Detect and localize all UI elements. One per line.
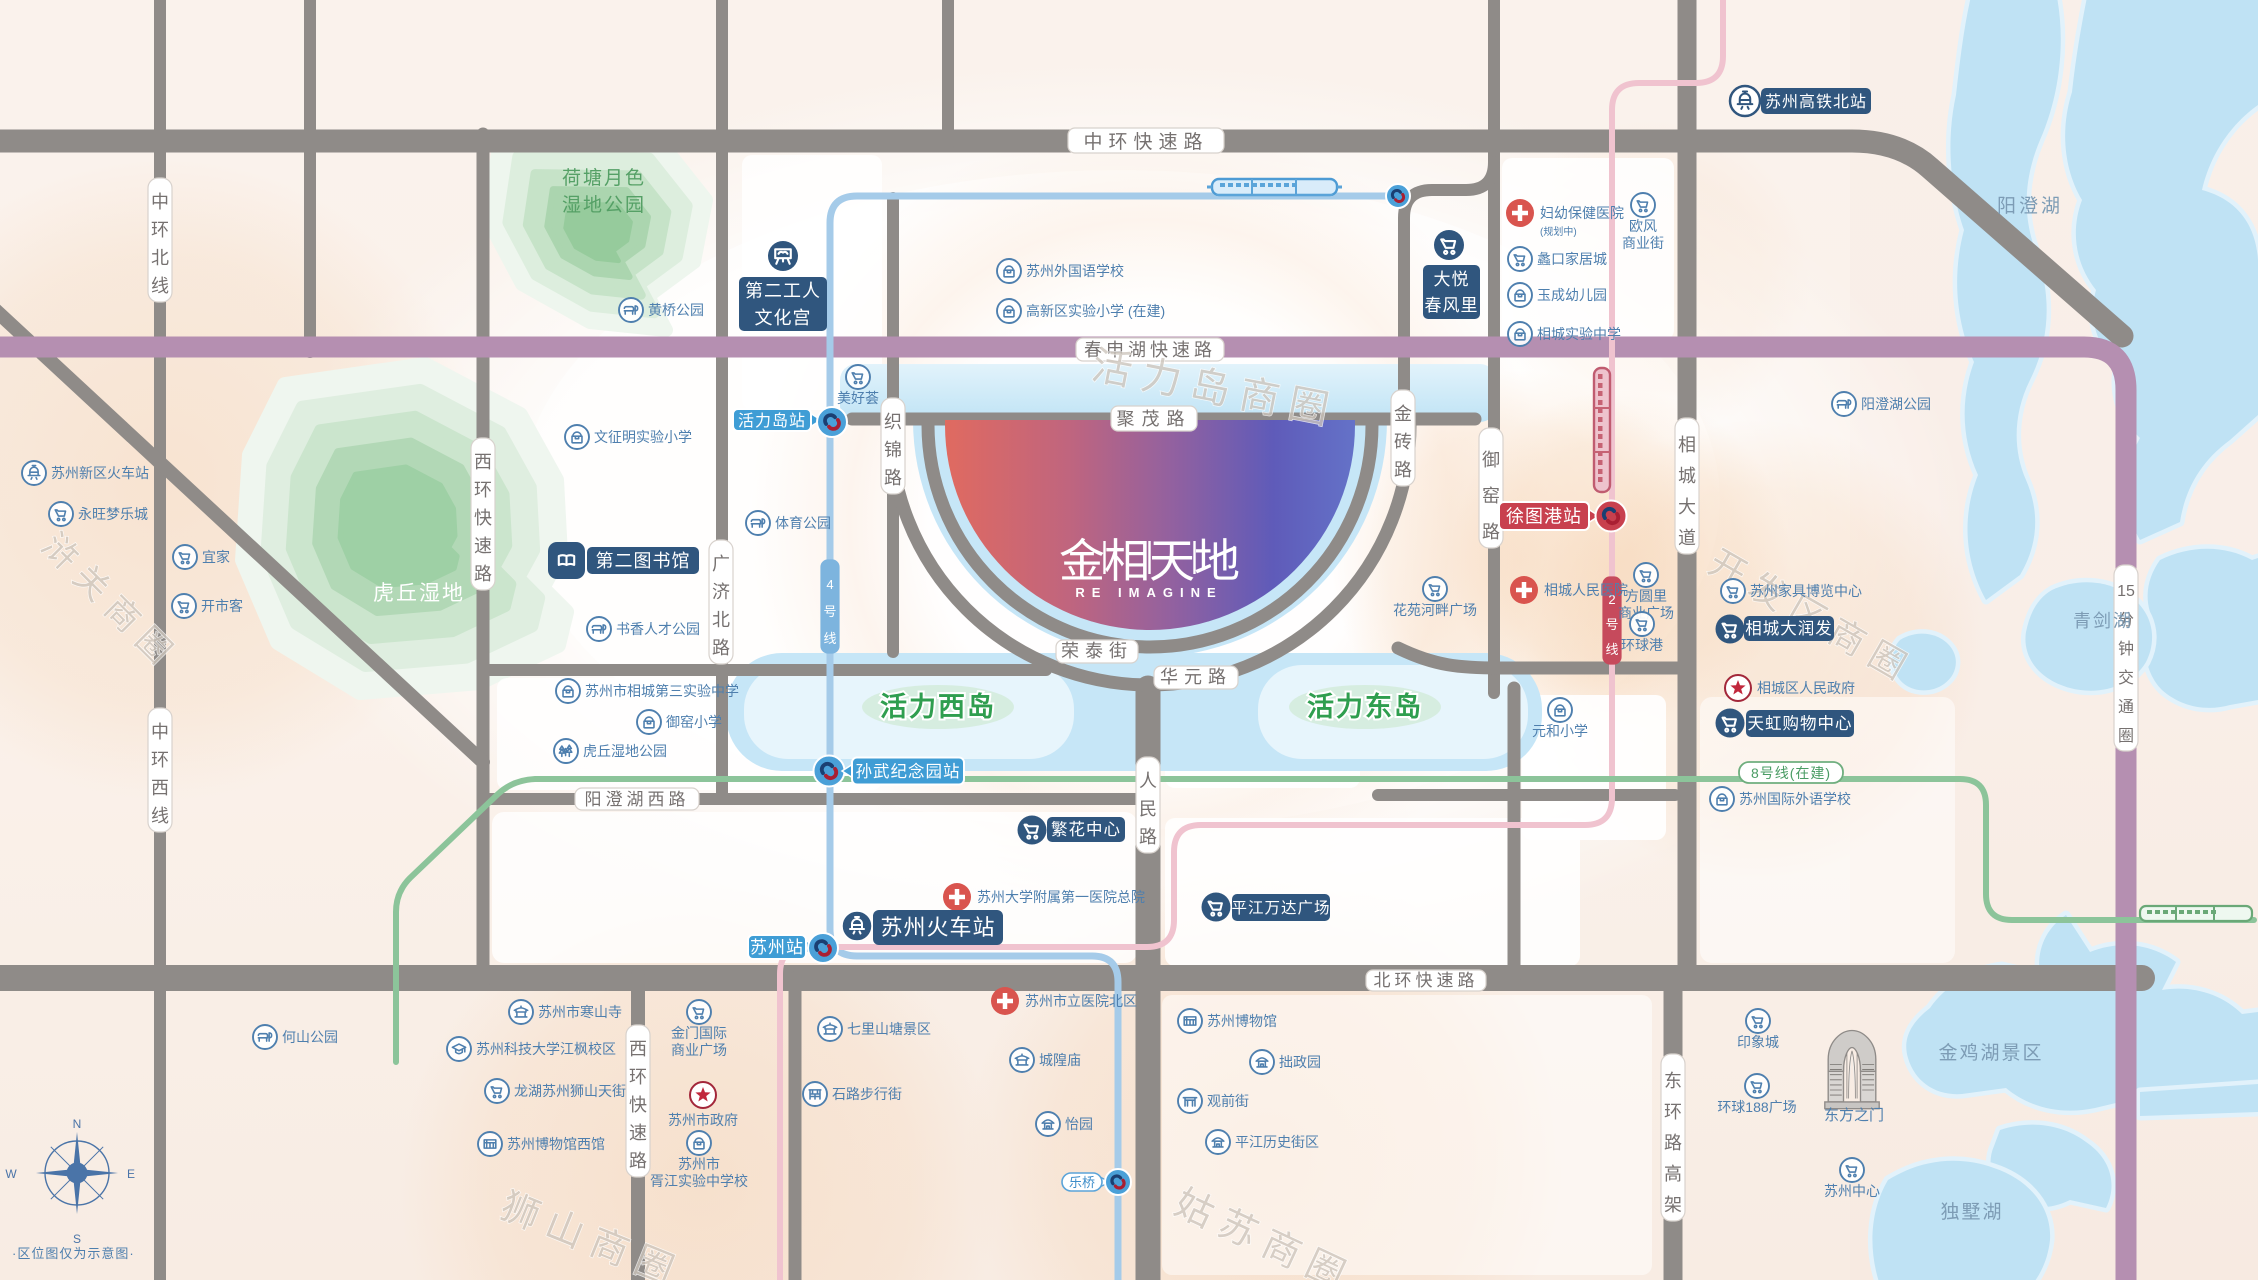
svg-text:相: 相 (1104, 535, 1150, 587)
svg-text:怡园: 怡园 (1065, 1116, 1093, 1132)
svg-text:阳澄湖公园: 阳澄湖公园 (1861, 396, 1931, 412)
svg-text:黄桥公园: 黄桥公园 (648, 302, 704, 318)
svg-text:圈: 圈 (2118, 727, 2134, 745)
svg-text:窑: 窑 (1482, 486, 1500, 506)
svg-text:活力岛站: 活力岛站 (738, 412, 806, 430)
svg-text:锦: 锦 (884, 440, 902, 460)
svg-text:城隍庙: 城隍庙 (1039, 1052, 1081, 1068)
svg-text:中: 中 (151, 192, 169, 212)
svg-text:W: W (5, 1167, 17, 1181)
svg-text:苏州火车站: 苏州火车站 (880, 915, 995, 940)
svg-text:荣泰街: 荣泰街 (1061, 641, 1133, 661)
svg-text:S: S (73, 1232, 81, 1246)
svg-text:欧风: 欧风 (1629, 218, 1657, 234)
svg-text:苏州市寒山寺: 苏州市寒山寺 (538, 1004, 622, 1020)
svg-text:N: N (73, 1117, 82, 1131)
svg-text:号: 号 (1605, 617, 1618, 632)
svg-text:东: 东 (1664, 1071, 1682, 1091)
svg-text:虎丘湿地公园: 虎丘湿地公园 (583, 743, 667, 759)
svg-text:乐桥: 乐桥 (1069, 1175, 1095, 1190)
svg-text:观前街: 观前街 (1207, 1093, 1249, 1109)
svg-text:西: 西 (629, 1039, 647, 1059)
svg-text:通: 通 (2118, 698, 2134, 716)
svg-text:中环快速路: 中环快速路 (1083, 131, 1208, 153)
svg-text:高: 高 (1664, 1164, 1682, 1184)
svg-text:环: 环 (151, 220, 169, 240)
svg-text:钟: 钟 (2118, 640, 2134, 658)
svg-text:速: 速 (474, 536, 492, 556)
svg-text:玉成幼儿园: 玉成幼儿园 (1537, 287, 1607, 303)
svg-text:天: 天 (1149, 535, 1195, 587)
svg-text:济: 济 (712, 582, 730, 602)
svg-text:东方之门: 东方之门 (1824, 1107, 1884, 1124)
svg-text:环: 环 (474, 480, 492, 500)
svg-text:金门国际: 金门国际 (671, 1025, 727, 1041)
svg-text:线: 线 (823, 631, 836, 646)
svg-text:金: 金 (1394, 404, 1412, 424)
svg-text:相城区人民政府: 相城区人民政府 (1757, 680, 1855, 696)
svg-text:高新区实验小学 (在建): 高新区实验小学 (在建) (1026, 303, 1165, 319)
svg-text:商业广场: 商业广场 (671, 1042, 727, 1058)
svg-text:徐图港站: 徐图港站 (1506, 506, 1582, 526)
svg-text:快: 快 (629, 1095, 647, 1115)
svg-text:大悦: 大悦 (1434, 270, 1470, 289)
svg-text:速: 速 (629, 1123, 647, 1143)
svg-text:聚茂路: 聚茂路 (1117, 409, 1192, 429)
svg-text:相城实验中学: 相城实验中学 (1537, 326, 1621, 342)
svg-text:·区位图仅为示意图·: ·区位图仅为示意图· (12, 1246, 135, 1261)
svg-text:砖: 砖 (1394, 432, 1412, 452)
svg-text:地: 地 (1194, 535, 1240, 587)
svg-text:御窑小学: 御窑小学 (666, 714, 722, 730)
svg-text:环球港: 环球港 (1621, 637, 1663, 653)
svg-text:独墅湖: 独墅湖 (1940, 1201, 2003, 1223)
svg-text:北: 北 (712, 610, 730, 630)
svg-text:民: 民 (1139, 799, 1157, 819)
svg-text:苏州新区火车站: 苏州新区火车站 (51, 465, 149, 481)
svg-text:春风里: 春风里 (1425, 296, 1479, 315)
svg-text:何山公园: 何山公园 (282, 1029, 338, 1045)
svg-text:平江万达广场: 平江万达广场 (1231, 899, 1330, 917)
svg-text:美好荟: 美好荟 (837, 390, 879, 406)
svg-text:湿地公园: 湿地公园 (562, 194, 646, 216)
svg-text:路: 路 (712, 638, 730, 658)
svg-text:御: 御 (1482, 450, 1500, 470)
svg-text:第二图书馆: 第二图书馆 (596, 551, 691, 571)
svg-text:线: 线 (1605, 642, 1618, 657)
svg-text:路: 路 (884, 468, 902, 488)
svg-text:石路步行街: 石路步行街 (832, 1086, 902, 1102)
svg-text:龙湖苏州狮山天街: 龙湖苏州狮山天街 (514, 1083, 626, 1099)
svg-text:RE IMAGINE: RE IMAGINE (1075, 585, 1222, 600)
svg-text:15: 15 (2117, 583, 2135, 600)
svg-text:路: 路 (474, 564, 492, 584)
svg-text:苏州博物馆西馆: 苏州博物馆西馆 (507, 1136, 605, 1152)
svg-text:永旺梦乐城: 永旺梦乐城 (78, 506, 148, 522)
svg-text:环球188广场: 环球188广场 (1717, 1099, 1796, 1115)
svg-text:路: 路 (1664, 1133, 1682, 1153)
svg-text:人: 人 (1139, 771, 1157, 791)
svg-text:E: E (127, 1167, 135, 1181)
svg-text:路: 路 (1482, 522, 1500, 542)
svg-text:架: 架 (1664, 1195, 1682, 1215)
svg-text:孙武纪念园站: 孙武纪念园站 (856, 761, 961, 781)
svg-text:阳澄湖: 阳澄湖 (1997, 195, 2063, 217)
svg-text:天虹购物中心: 天虹购物中心 (1748, 714, 1853, 733)
svg-text:苏州市: 苏州市 (678, 1156, 720, 1172)
svg-text:商业街: 商业街 (1622, 235, 1664, 251)
svg-text:蠡口家居城: 蠡口家居城 (1537, 251, 1607, 267)
svg-text:花苑河畔广场: 花苑河畔广场 (1393, 602, 1477, 618)
svg-text:文化宫: 文化宫 (755, 308, 812, 328)
svg-text:第二工人: 第二工人 (745, 281, 821, 301)
svg-text:虎丘湿地: 虎丘湿地 (373, 582, 465, 605)
svg-text:苏州国际外语学校: 苏州国际外语学校 (1739, 791, 1851, 807)
svg-text:苏州中心: 苏州中心 (1824, 1183, 1880, 1199)
svg-text:苏州家具博览中心: 苏州家具博览中心 (1750, 583, 1862, 599)
svg-text:金: 金 (1059, 535, 1105, 587)
svg-text:北环快速路: 北环快速路 (1374, 971, 1479, 990)
svg-text:元和小学: 元和小学 (1532, 723, 1588, 739)
svg-text:交: 交 (2118, 669, 2134, 687)
svg-text:环: 环 (1664, 1102, 1682, 1122)
svg-text:金鸡湖景区: 金鸡湖景区 (1938, 1042, 2043, 1064)
svg-text:路: 路 (1394, 460, 1412, 480)
svg-text:线: 线 (151, 806, 169, 826)
svg-text:苏州科技大学江枫校区: 苏州科技大学江枫校区 (476, 1041, 616, 1057)
svg-text:拙政园: 拙政园 (1279, 1054, 1321, 1070)
svg-text:华元路: 华元路 (1160, 667, 1232, 687)
svg-text:印象城: 印象城 (1737, 1034, 1779, 1050)
svg-text:西: 西 (474, 452, 492, 472)
svg-text:苏州博物馆: 苏州博物馆 (1207, 1013, 1277, 1029)
svg-text:活力西岛: 活力西岛 (880, 691, 996, 722)
svg-text:苏州站: 苏州站 (750, 938, 804, 957)
svg-text:环: 环 (629, 1067, 647, 1087)
svg-text:青剑湖: 青剑湖 (2073, 611, 2133, 631)
svg-text:平江历史街区: 平江历史街区 (1235, 1134, 1319, 1150)
svg-text:大: 大 (1678, 497, 1696, 517)
svg-text:苏州市相城第三实验中学: 苏州市相城第三实验中学 (585, 683, 739, 699)
svg-text:苏州市立医院北区: 苏州市立医院北区 (1025, 993, 1137, 1009)
svg-text:苏州大学附属第一医院总院: 苏州大学附属第一医院总院 (977, 889, 1145, 905)
svg-text:七里山塘景区: 七里山塘景区 (847, 1021, 931, 1037)
svg-text:西: 西 (151, 778, 169, 798)
svg-text:活力东岛: 活力东岛 (1307, 691, 1423, 722)
svg-text:相: 相 (1678, 435, 1696, 455)
svg-text:阳澄湖西路: 阳澄湖西路 (585, 790, 690, 809)
svg-text:妇幼保健医院: 妇幼保健医院 (1540, 205, 1624, 221)
svg-text:路: 路 (629, 1151, 647, 1171)
svg-text:道: 道 (1678, 528, 1696, 548)
svg-text:(规划中): (规划中) (1540, 225, 1577, 238)
svg-text:荷塘月色: 荷塘月色 (562, 167, 646, 189)
svg-text:方圆里: 方圆里 (1625, 588, 1667, 604)
svg-text:城: 城 (1678, 466, 1696, 486)
svg-text:开市客: 开市客 (201, 598, 243, 614)
svg-text:苏州市政府: 苏州市政府 (668, 1112, 738, 1128)
svg-text:路: 路 (1139, 827, 1157, 847)
svg-text:中: 中 (151, 722, 169, 742)
svg-text:苏州外国语学校: 苏州外国语学校 (1026, 263, 1124, 279)
svg-text:线: 线 (151, 276, 169, 296)
svg-text:繁花中心: 繁花中心 (1051, 820, 1121, 839)
svg-text:织: 织 (884, 412, 902, 432)
svg-text:文征明实验小学: 文征明实验小学 (594, 429, 692, 445)
svg-text:北: 北 (151, 248, 169, 268)
svg-text:宜家: 宜家 (202, 549, 230, 565)
svg-text:苏州高铁北站: 苏州高铁北站 (1765, 93, 1867, 111)
svg-text:体育公园: 体育公园 (775, 515, 831, 531)
svg-text:广: 广 (712, 554, 730, 574)
svg-text:书香人才公园: 书香人才公园 (616, 621, 700, 637)
svg-text:相城大润发: 相城大润发 (1745, 619, 1833, 638)
svg-text:号: 号 (823, 604, 836, 619)
svg-text:相城人民医院: 相城人民医院 (1544, 582, 1628, 598)
svg-text:快: 快 (474, 508, 492, 528)
svg-text:8号线(在建): 8号线(在建) (1751, 765, 1831, 781)
svg-text:胥江实验中学校: 胥江实验中学校 (650, 1173, 748, 1189)
svg-text:4: 4 (826, 577, 833, 592)
svg-text:环: 环 (151, 750, 169, 770)
